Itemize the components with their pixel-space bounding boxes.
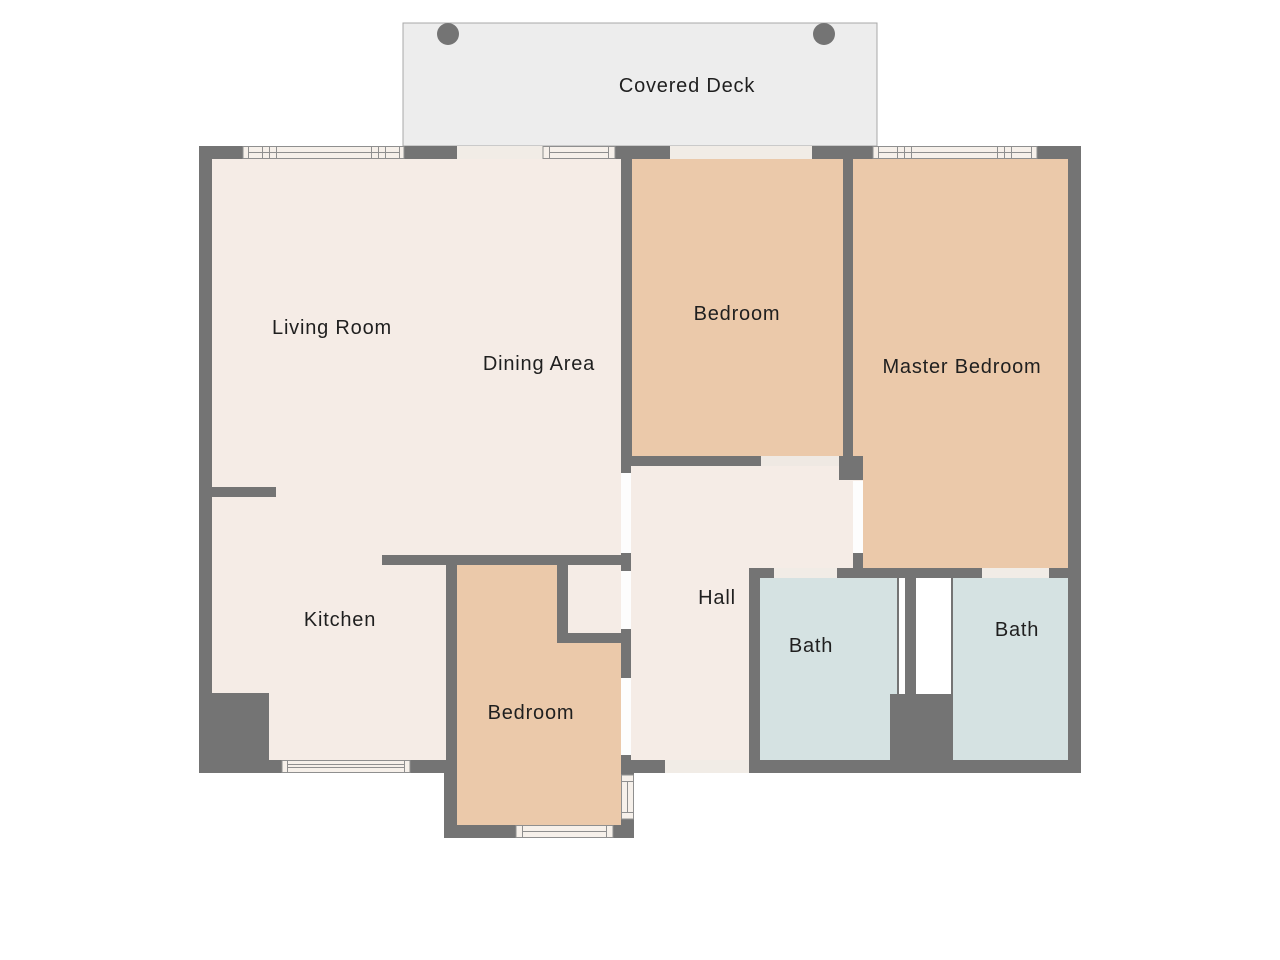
svg-text:Dining Area: Dining Area (483, 353, 595, 375)
svg-text:Bedroom: Bedroom (488, 702, 575, 724)
svg-text:Covered Deck: Covered Deck (619, 75, 756, 97)
svg-text:Bath: Bath (789, 635, 833, 657)
svg-text:Living Room: Living Room (272, 317, 392, 339)
svg-text:Kitchen: Kitchen (304, 609, 376, 631)
svg-text:Hall: Hall (698, 587, 736, 609)
svg-text:Bedroom: Bedroom (694, 303, 781, 325)
svg-text:Bath: Bath (995, 619, 1039, 641)
svg-text:Master Bedroom: Master Bedroom (882, 356, 1041, 378)
